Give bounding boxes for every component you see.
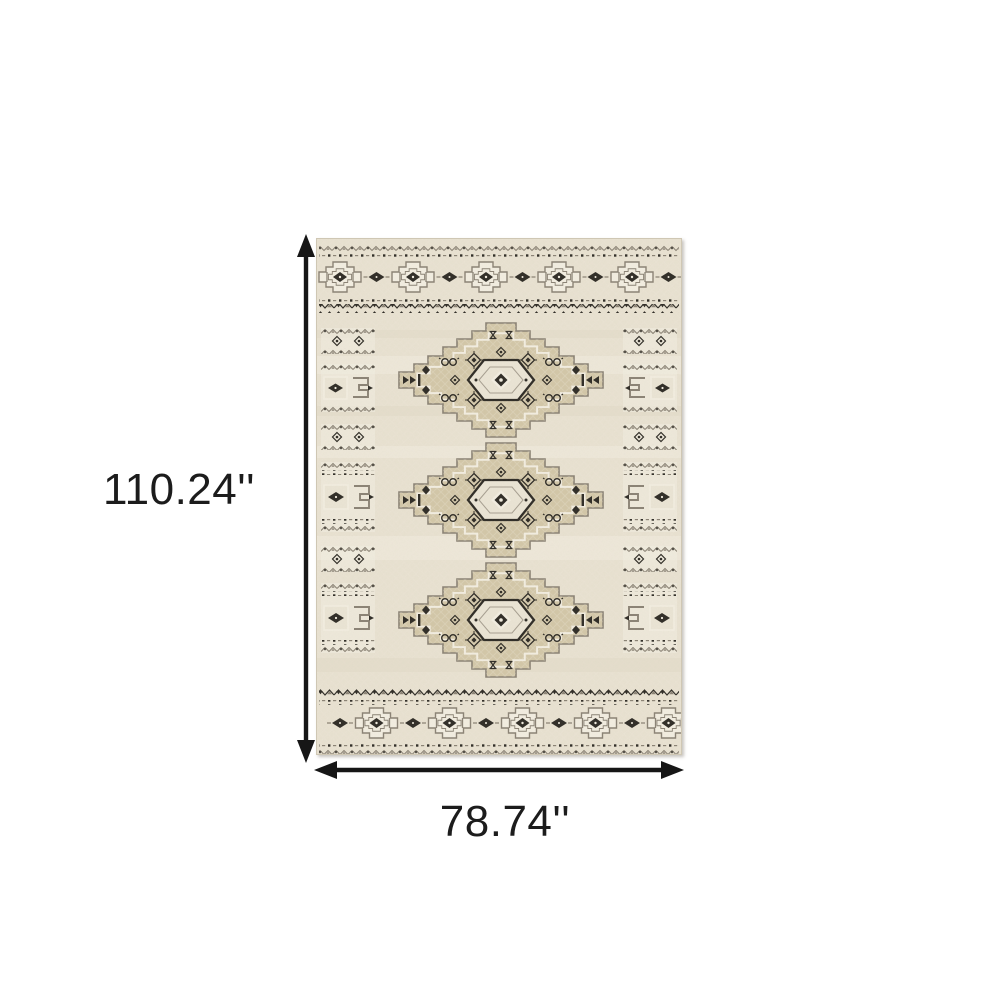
rug-noise-overlay [316,238,682,755]
arrow-right-icon [661,761,684,779]
rug-image [316,238,682,755]
arrow-up-icon [297,234,315,257]
arrow-left-icon [314,761,337,779]
width-dimension-label: 78.74'' [375,800,635,844]
product-dimension-diagram: 110.24'' 78.74'' [0,0,1000,1000]
arrow-down-icon [297,740,315,763]
width-arrow [314,761,684,779]
rug-graphic [316,238,682,755]
height-dimension-label: 110.24'' [49,468,309,512]
